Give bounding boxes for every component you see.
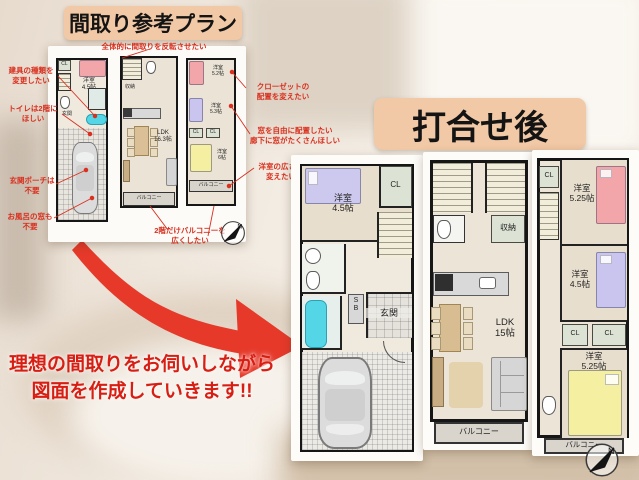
lp2-sofa-icon xyxy=(491,357,527,411)
lp3-closet-top-label: CL xyxy=(539,172,559,180)
lp3-stairs xyxy=(539,192,559,240)
before-title: 間取り参考プラン xyxy=(64,6,242,40)
lp2-storage-label: 収納 xyxy=(491,224,525,233)
sp2-balcony-label: バルコニー xyxy=(123,196,175,202)
lp2-stove-icon xyxy=(435,274,453,291)
sp2-chair xyxy=(150,148,158,157)
lp1-bathtub-icon xyxy=(305,300,327,348)
before-title-text: 間取り参考プラン xyxy=(69,8,237,38)
sp1-bed xyxy=(79,60,106,77)
caption-text: 理想の間取りをお伺いしながら 図面を作成していきます!! xyxy=(8,352,276,405)
after-plan-2f-sheet: 収納 LDK 15帖 バルコニー xyxy=(423,152,535,450)
lp1-shoebox-label: S B xyxy=(348,297,364,313)
before-plans-sheet: CL 洋室 4.5帖 玄関 収納 LDK 16.3帖 バルコニー xyxy=(48,46,246,242)
lp1-car-rear-window xyxy=(326,424,364,435)
lp2-balcony-label: バルコニー xyxy=(434,428,524,437)
note-left-2: トイレは2階に ほしい xyxy=(4,104,62,124)
lp2-toilet-icon xyxy=(437,220,451,239)
note-top: 全体的に間取りを反転させたい xyxy=(88,42,220,52)
sp2-storage-label: 収納 xyxy=(121,85,139,91)
sp3-balcony-label: バルコニー xyxy=(189,183,233,189)
sp3-closet2-label: CL xyxy=(206,130,220,136)
poster: 間取り参考プラン CL 洋室 4.5帖 玄関 収納 LDK 16.3 xyxy=(0,0,639,480)
lp2-rug xyxy=(449,362,483,408)
lp3-room2-label: 洋室 4.5帖 xyxy=(562,270,598,289)
sp2-tv-board xyxy=(123,160,130,182)
lp2-chair xyxy=(463,307,473,320)
compass-n-label: N xyxy=(608,446,615,456)
sp2-ldk-label: LDK 16.3帖 xyxy=(150,130,176,143)
sp3-closet1-label: CL xyxy=(189,130,203,136)
lp2-sofa-cushion-line xyxy=(500,361,501,407)
lp2-tv-board xyxy=(432,357,444,407)
sp1-car-roof xyxy=(76,165,94,191)
lp3-toilet-icon xyxy=(542,396,556,415)
lp2-sofa-cushion-line xyxy=(500,375,524,376)
after-title: 打合せ後 xyxy=(374,98,586,150)
lp1-genkan-label: 玄関 xyxy=(366,308,412,318)
compass-n-label: N xyxy=(237,224,242,231)
sp2-chair xyxy=(127,128,135,137)
lp2-chair xyxy=(463,337,473,350)
lp2-chair xyxy=(431,337,441,350)
lp2-sofa-cushion-line xyxy=(500,392,524,393)
sp3-bed-pink xyxy=(189,61,204,85)
compass-icon: N xyxy=(584,442,620,478)
lp3-bed-pink xyxy=(596,166,626,224)
lp3-pillow xyxy=(600,169,612,178)
sp1-bathroom xyxy=(88,88,106,110)
lp1-room-label: 洋室 4.5帖 xyxy=(321,193,365,213)
lp1-toilet-icon xyxy=(306,271,320,290)
note-right-2: 窓を自由に配置したい 廊下に窓がたくさんほしい xyxy=(246,126,344,146)
after-plan-1f-sheet: CL 洋室 4.5帖 S B 玄関 xyxy=(291,155,423,461)
lp2-dining-table xyxy=(439,304,461,352)
sp3-room2-label: 洋室 5.3帖 xyxy=(202,104,230,115)
lp3-room1-label: 洋室 5.25帖 xyxy=(564,184,600,203)
sp2-stairs xyxy=(122,58,142,80)
lp3-bed-yellow xyxy=(568,370,622,436)
lp1-car-roof xyxy=(325,389,365,421)
after-plan-3f-sheet: CL 洋室 5.25帖 洋室 4.5帖 CL CL 洋室 5.25帖 バルコニー xyxy=(532,150,639,456)
after-title-text: 打合せ後 xyxy=(412,100,548,149)
lp2-ldk-label: LDK 15帖 xyxy=(485,318,525,339)
sp1-car-windshield xyxy=(76,152,94,162)
sp2-sofa-icon xyxy=(166,158,177,186)
sp2-stove-icon xyxy=(123,108,132,117)
note-right-1: クローゼットの 配置を変えたい xyxy=(246,82,320,102)
compass-icon: N xyxy=(220,220,246,246)
sp3-bed-yellow xyxy=(190,144,212,172)
sp3-room3-label: 洋室 6帖 xyxy=(210,150,234,161)
note-left-1: 建具の種類を 変更したい xyxy=(2,66,60,86)
sp2-chair xyxy=(127,138,135,147)
lp1-closet-label: CL xyxy=(379,181,412,190)
lp3-pillow xyxy=(600,255,612,264)
lp1-pillow xyxy=(308,171,318,185)
lp1-washbasin-icon xyxy=(305,248,321,264)
lp3-room3-label: 洋室 5.25帖 xyxy=(572,352,616,371)
lp2-chair xyxy=(431,307,441,320)
lp3-pillow xyxy=(605,374,619,385)
lp3-closet1-label: CL xyxy=(562,330,588,338)
lp2-stairs-right xyxy=(485,163,525,213)
lp3-bed-purple xyxy=(596,252,626,308)
lp1-stairs xyxy=(377,212,412,258)
lp1-car-windshield xyxy=(325,371,365,385)
sp2-dining-table xyxy=(134,126,149,156)
note-left-3: 玄関ポーチは 不要 xyxy=(6,176,58,196)
lp3-closet2-label: CL xyxy=(592,330,626,338)
sp1-bathtub-icon xyxy=(86,114,107,125)
lp2-chair xyxy=(431,322,441,335)
lp2-sink-icon xyxy=(479,277,496,289)
sp3-bed-purple xyxy=(189,98,203,122)
lp2-chair xyxy=(463,322,473,335)
sp1-car-icon xyxy=(72,142,98,214)
sp2-chair xyxy=(127,148,135,157)
note-left-4: お風呂の窓も 不要 xyxy=(2,212,58,232)
lp1-car-icon xyxy=(318,357,372,449)
sp2-toilet-icon xyxy=(146,61,156,74)
lp2-stairs-left xyxy=(433,163,473,213)
sp3-room1-label: 洋室 5.2帖 xyxy=(204,66,232,77)
